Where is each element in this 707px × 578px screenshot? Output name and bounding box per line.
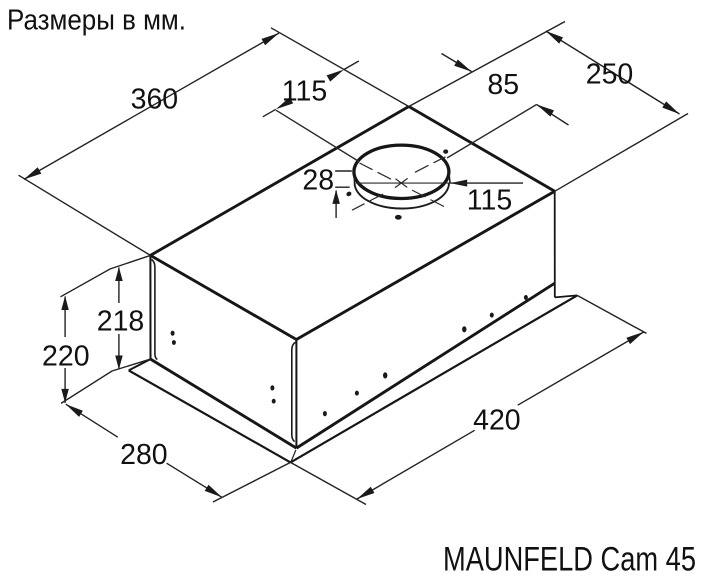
- svg-text:360: 360: [131, 83, 179, 115]
- svg-text:218: 218: [97, 305, 145, 337]
- svg-text:280: 280: [120, 439, 168, 471]
- svg-text:115: 115: [467, 185, 512, 217]
- svg-text:MAUNFELD Cam 45: MAUNFELD Cam 45: [443, 541, 696, 578]
- svg-text:85: 85: [487, 69, 519, 101]
- svg-text:220: 220: [42, 340, 90, 372]
- svg-text:250: 250: [586, 59, 634, 91]
- svg-text:115: 115: [282, 75, 327, 107]
- svg-text:Размеры в мм.: Размеры в мм.: [7, 4, 186, 36]
- svg-text:28: 28: [302, 164, 334, 196]
- svg-text:420: 420: [473, 405, 521, 437]
